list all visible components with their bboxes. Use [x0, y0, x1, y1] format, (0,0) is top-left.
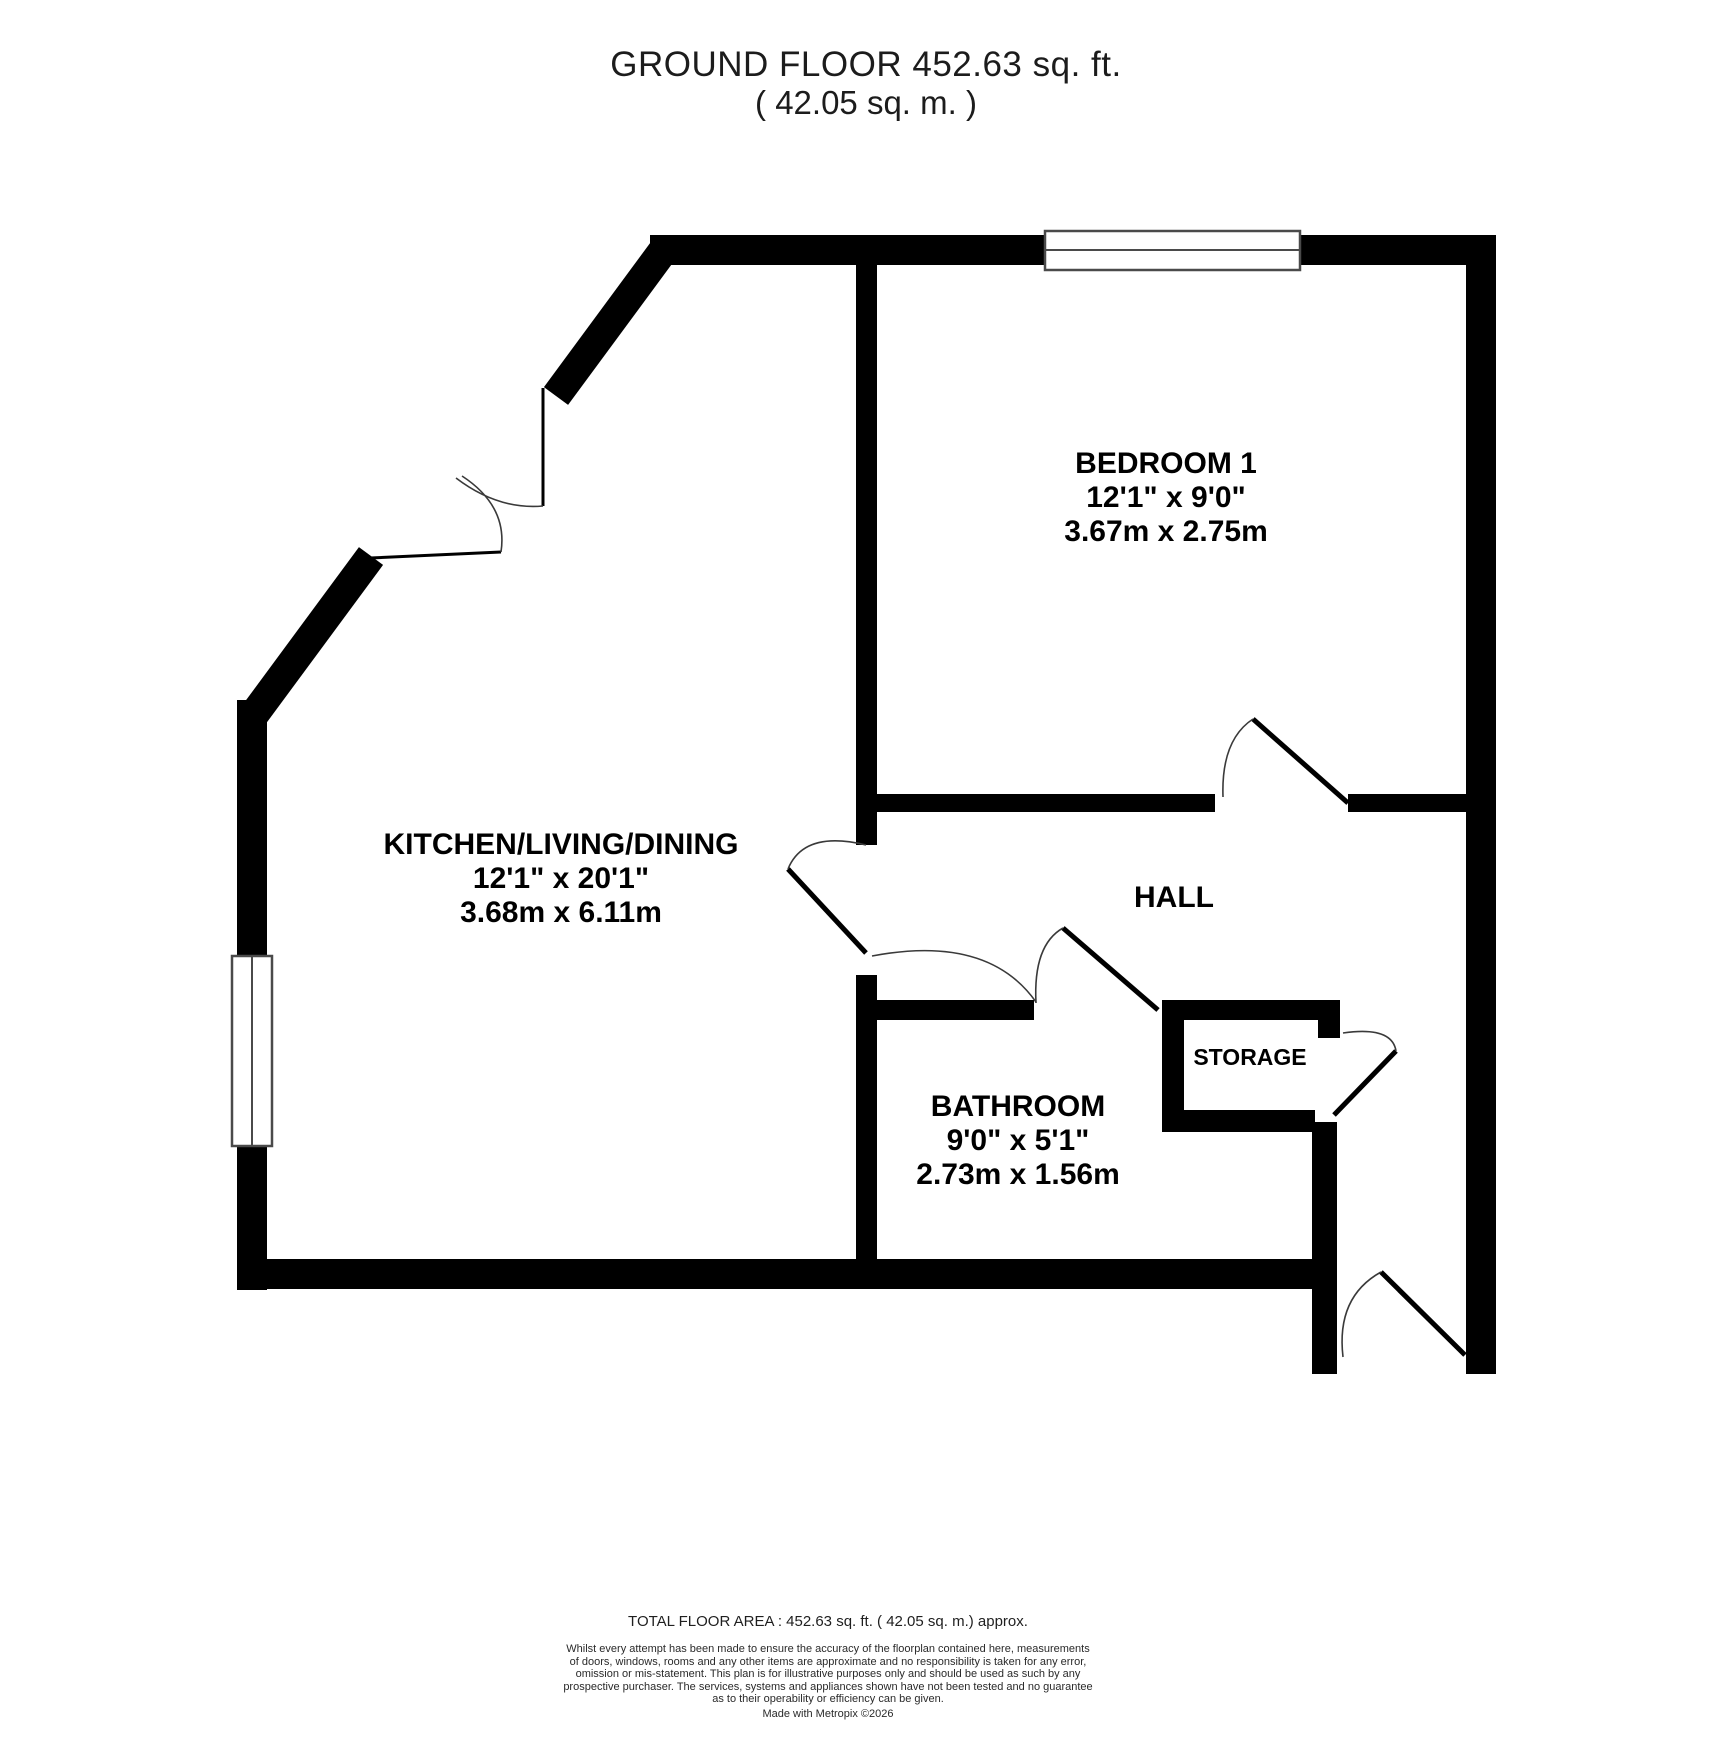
kitchen-dimensions-metric: 3.68m x 6.11m — [383, 896, 738, 930]
wall-divider-upper — [856, 265, 877, 845]
wall-diagonal-upper — [556, 244, 668, 396]
bathroom-door-arc — [1036, 928, 1063, 1003]
bathroom-dimensions-imperial: 9'0" x 5'1" — [916, 1124, 1119, 1158]
bedroom-door-arc — [1223, 719, 1253, 797]
wall-storage-east-stub — [1318, 1000, 1340, 1038]
bedroom-dimensions-metric: 3.67m x 2.75m — [1064, 515, 1267, 549]
bedroom-label: BEDROOM 1 12'1" x 9'0" 3.67m x 2.75m — [1064, 447, 1267, 549]
wall-diagonal-lower — [250, 556, 371, 720]
wall-bedroom-south-left — [856, 794, 1215, 812]
bathroom-name: BATHROOM — [916, 1090, 1119, 1124]
kitchen-door-arc — [788, 841, 866, 869]
wall-bathroom-north — [877, 1000, 1034, 1020]
french-door-leaf-lower — [370, 552, 501, 558]
wall-divider-lower — [856, 975, 877, 1259]
hall-name: HALL — [1134, 881, 1214, 915]
total-floor-area: TOTAL FLOOR AREA : 452.63 sq. ft. ( 42.0… — [0, 1612, 1656, 1632]
kitchen-label: KITCHEN/LIVING/DINING 12'1" x 20'1" 3.68… — [383, 828, 738, 930]
wall-storage-south — [1162, 1110, 1315, 1132]
wall-bedroom-south-right — [1348, 794, 1466, 812]
bathroom-door-leaf — [1063, 928, 1158, 1010]
plan-title-line1: GROUND FLOOR 452.63 sq. ft. — [0, 46, 1732, 84]
storage-door-arc — [1343, 1031, 1396, 1051]
wall-storage-north — [1162, 1000, 1340, 1020]
bathroom-label: BATHROOM 9'0" x 5'1" 2.73m x 1.56m — [916, 1090, 1119, 1192]
wall-right — [1466, 235, 1496, 1374]
kitchen-dimensions-imperial: 12'1" x 20'1" — [383, 862, 738, 896]
disclaimer-line3: omission or mis-statement. This plan is … — [0, 1668, 1656, 1681]
bedroom-door-leaf — [1253, 719, 1348, 803]
storage-door-leaf — [1334, 1051, 1396, 1115]
kitchen-door-arc-2 — [872, 951, 1036, 1002]
plan-title-line2: ( 42.05 sq. m. ) — [0, 84, 1732, 121]
disclaimer-line4: prospective purchaser. The services, sys… — [0, 1681, 1656, 1694]
storage-name: STORAGE — [1193, 1044, 1306, 1070]
kitchen-door-leaf — [788, 869, 866, 953]
bedroom-dimensions-imperial: 12'1" x 9'0" — [1064, 481, 1267, 515]
bedroom-name: BEDROOM 1 — [1064, 447, 1267, 481]
wall-bottom — [237, 1259, 1337, 1289]
kitchen-name: KITCHEN/LIVING/DINING — [383, 828, 738, 862]
disclaimer: Whilst every attempt has been made to en… — [0, 1643, 1656, 1706]
disclaimer-line5: as to their operability or efficiency ca… — [0, 1693, 1656, 1706]
disclaimer-line1: Whilst every attempt has been made to en… — [0, 1643, 1656, 1656]
entrance-door-leaf — [1381, 1272, 1465, 1355]
disclaimer-line2: of doors, windows, rooms and any other i… — [0, 1656, 1656, 1669]
window-top — [1045, 231, 1300, 270]
entrance-door-arc — [1342, 1272, 1381, 1357]
floorplan-drawing — [0, 0, 1732, 1753]
metropix-credit: Made with Metropix ©2026 — [0, 1708, 1656, 1721]
wall-entry-stub — [1312, 1122, 1337, 1374]
storage-label: STORAGE — [1193, 1044, 1306, 1070]
french-door-arc-lower — [462, 476, 502, 552]
french-door-arc-upper — [456, 478, 543, 506]
plan-footer: TOTAL FLOOR AREA : 452.63 sq. ft. ( 42.0… — [0, 1612, 1656, 1720]
window-left — [232, 956, 272, 1146]
plan-title: GROUND FLOOR 452.63 sq. ft. ( 42.05 sq. … — [0, 46, 1732, 121]
bathroom-dimensions-metric: 2.73m x 1.56m — [916, 1158, 1119, 1192]
floorplan-page: GROUND FLOOR 452.63 sq. ft. ( 42.05 sq. … — [0, 0, 1732, 1753]
hall-label: HALL — [1134, 881, 1214, 915]
